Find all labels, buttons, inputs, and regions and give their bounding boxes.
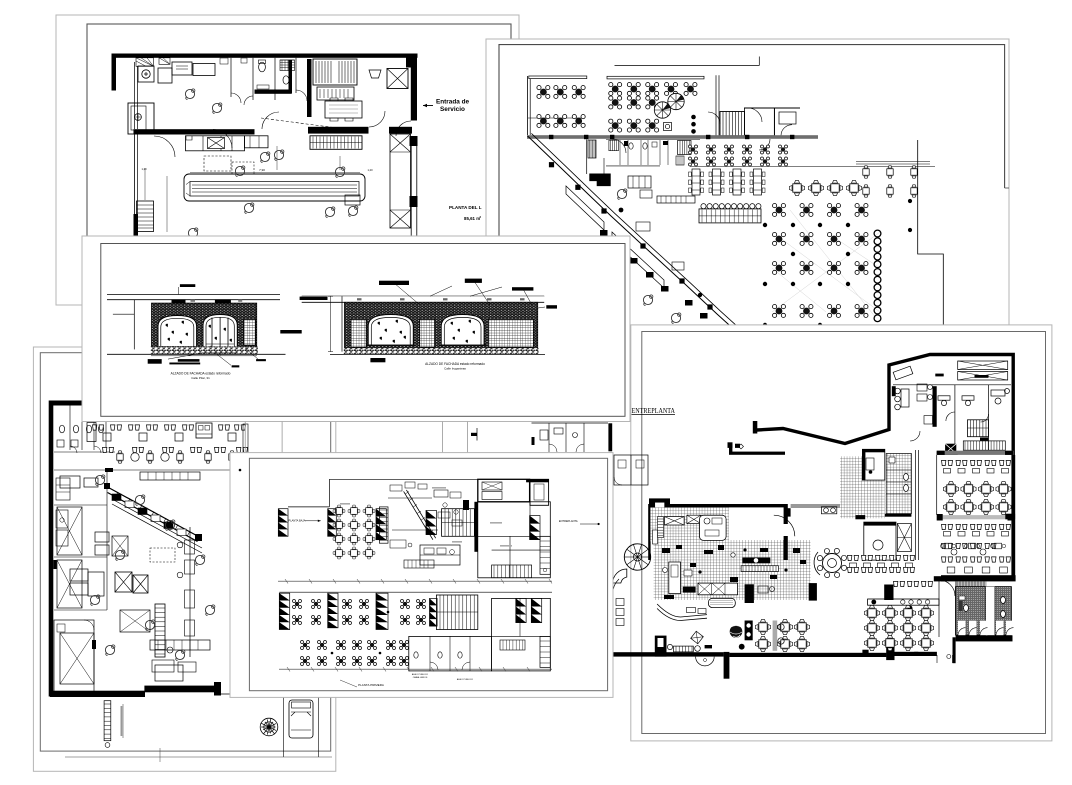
svg-text:1,20: 1,20: [141, 167, 147, 171]
svg-text:Calle Iruganteas: Calle Iruganteas: [444, 367, 466, 371]
svg-text:Servicio: Servicio: [440, 106, 465, 113]
svg-text:ASEO PUBLICO: ASEO PUBLICO: [457, 678, 474, 681]
svg-text:ALZADO DE FACHADA estado refo: ALZADO DE FACHADA estado reformado: [171, 372, 231, 376]
svg-text:ENTREPLANTA: ENTREPLANTA: [632, 406, 676, 415]
svg-text:PLANTA DEL L: PLANTA DEL L: [449, 205, 482, 210]
svg-text:PLANTA BAJA: PLANTA BAJA: [289, 519, 306, 523]
svg-text:CABALLEROS: CABALLEROS: [413, 676, 428, 679]
svg-text:ALZADO DE FACHADA estado refo: ALZADO DE FACHADA estado reformado: [425, 362, 485, 366]
svg-text:1,20: 1,20: [367, 168, 373, 172]
svg-text:PLANTA PRIMERA: PLANTA PRIMERA: [358, 683, 384, 687]
svg-text:85,61 m: 85,61 m: [464, 216, 480, 221]
svg-text:ASEO PUBLICO: ASEO PUBLICO: [412, 673, 429, 676]
svg-text:Calle Pilar, 31: Calle Pilar, 31: [191, 376, 210, 380]
svg-text:7,90: 7,90: [259, 168, 265, 172]
svg-text:Entrada de: Entrada de: [436, 99, 469, 106]
svg-text:ENTREPLANTA: ENTREPLANTA: [559, 519, 578, 523]
